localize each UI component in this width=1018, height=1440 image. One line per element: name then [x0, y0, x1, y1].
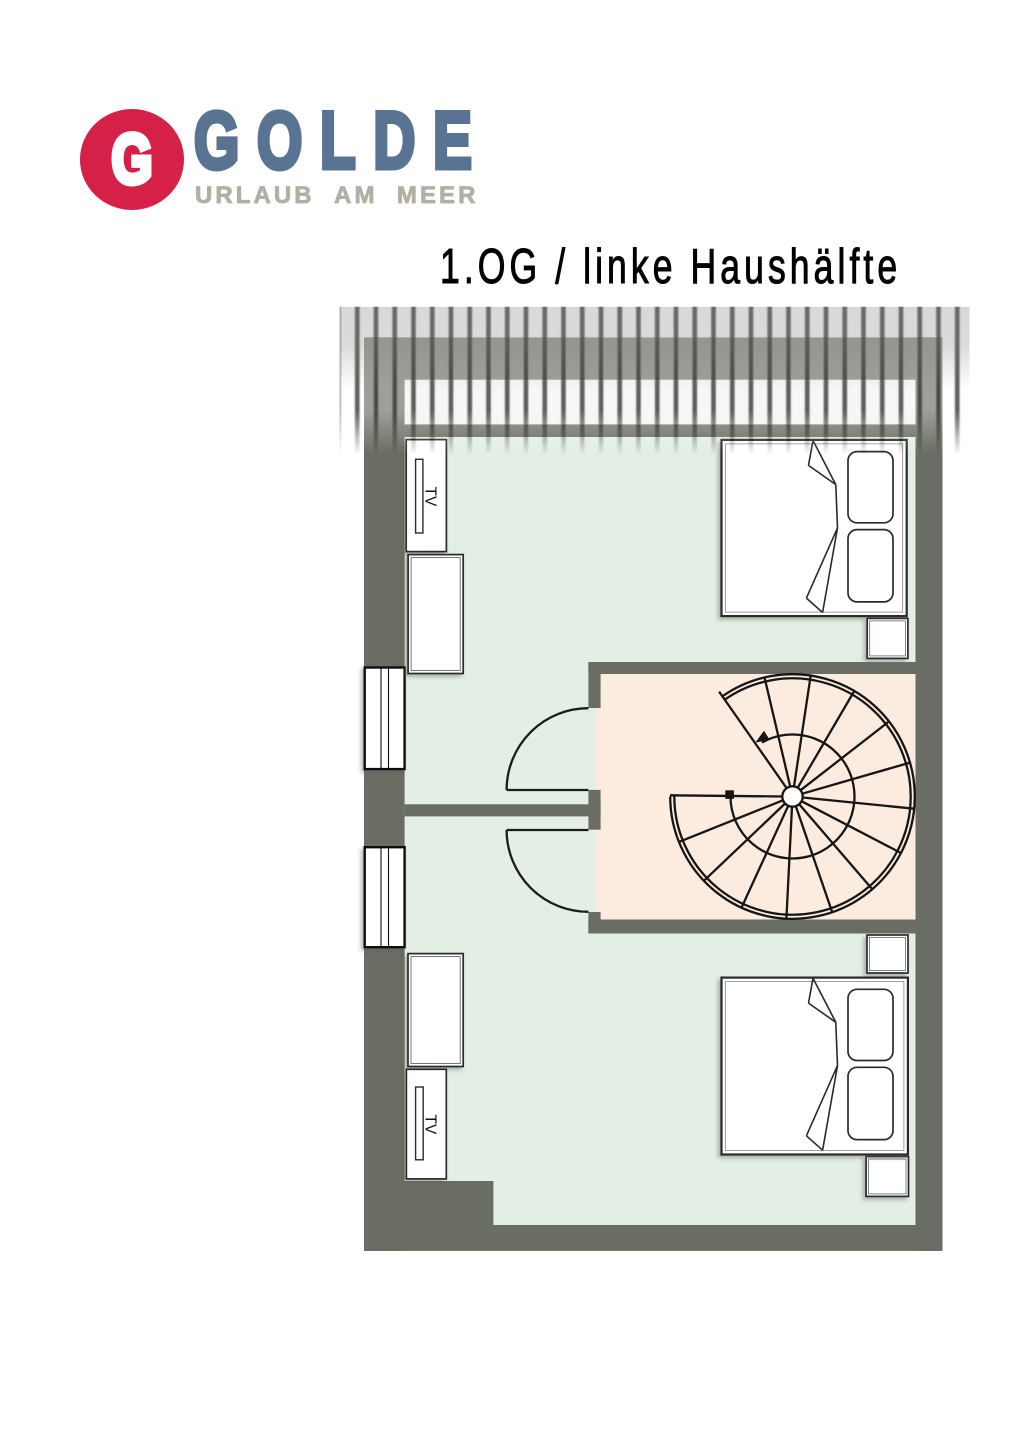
svg-text:TV: TV [422, 487, 439, 507]
svg-text:TV: TV [422, 1115, 439, 1135]
